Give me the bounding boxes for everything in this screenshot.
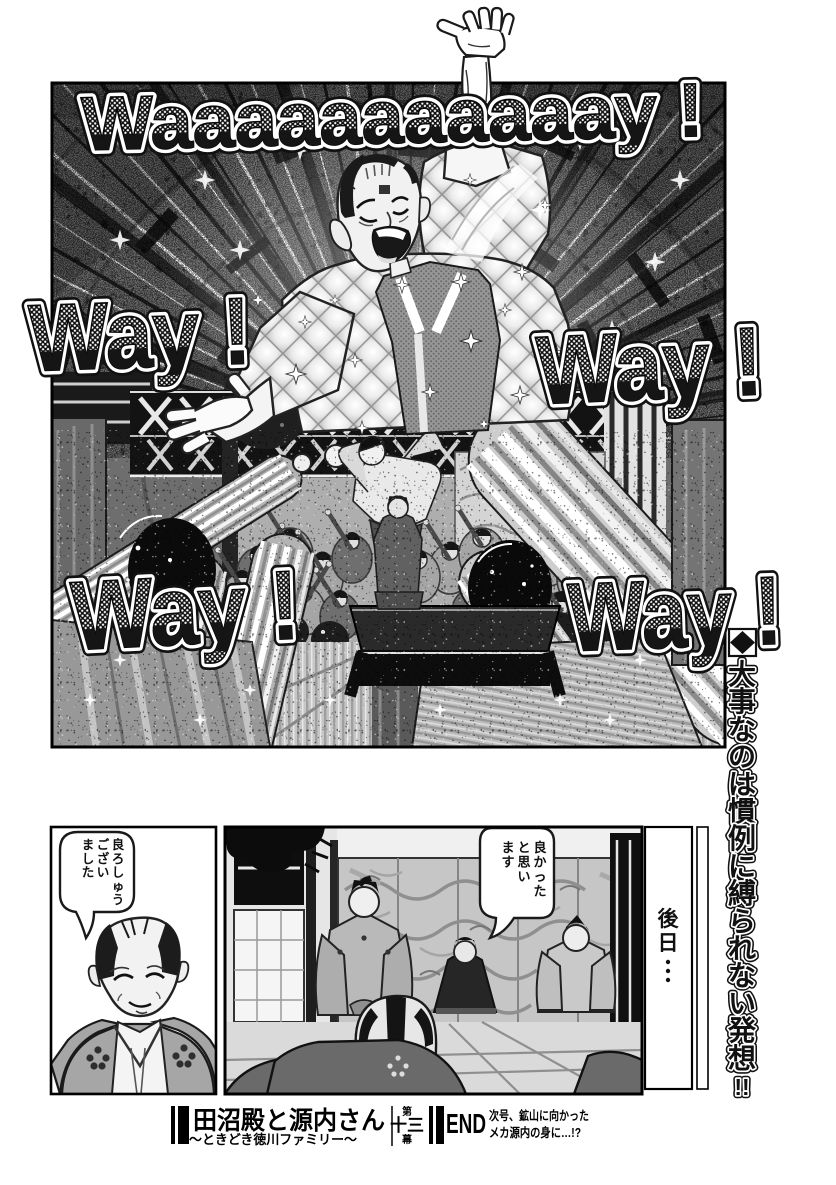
svg-text:メカ源内の身に…!?: メカ源内の身に…!? <box>489 1125 581 1140</box>
svg-text:ござい: ござい <box>97 837 110 880</box>
svg-text:大事なのは慣例に縛られない発想!!: 大事なのは慣例に縛られない発想!! <box>727 659 757 1100</box>
svg-text:END: END <box>446 1108 486 1139</box>
svg-text:次号、鉱山に向かった: 次号、鉱山に向かった <box>489 1108 589 1123</box>
svg-text:良かった: 良かった <box>533 840 546 899</box>
svg-text:田沼殿と源内さん: 田沼殿と源内さん <box>193 1107 385 1135</box>
svg-text:ました: ました <box>82 838 95 880</box>
svg-text:幕: 幕 <box>401 1133 413 1146</box>
svg-text:と思い: と思い <box>517 840 530 884</box>
svg-text:良ろしゅう: 良ろしゅう <box>112 837 125 907</box>
svg-text:～ときどき徳川ファミリー～: ～ときどき徳川ファミリー～ <box>189 1132 357 1147</box>
svg-text:十三: 十三 <box>390 1115 424 1135</box>
svg-text:ます: ます <box>501 840 514 870</box>
